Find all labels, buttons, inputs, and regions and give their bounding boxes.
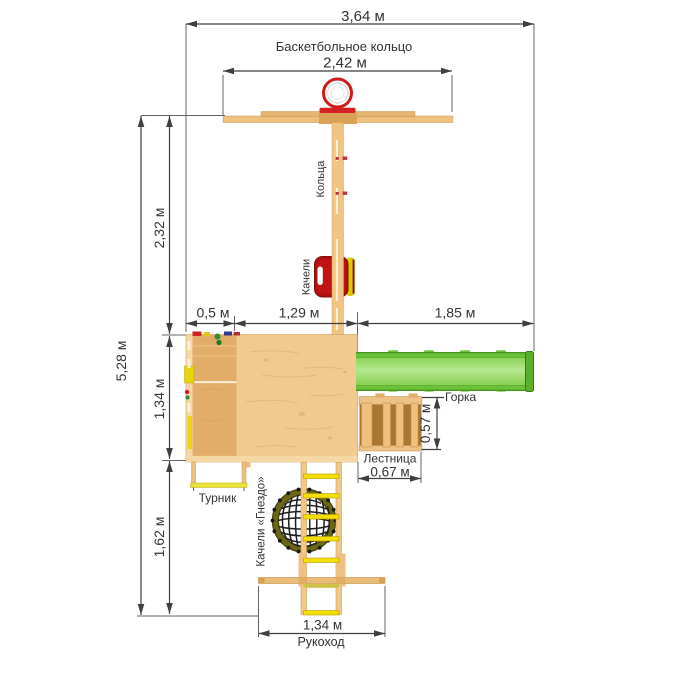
svg-text:0,5 м: 0,5 м: [197, 305, 230, 321]
svg-text:Турник: Турник: [199, 491, 238, 505]
svg-text:0,57 м: 0,57 м: [418, 404, 433, 443]
svg-text:Качели: Качели: [301, 259, 313, 295]
svg-text:3,64 м: 3,64 м: [341, 8, 385, 25]
svg-text:5,28 м: 5,28 м: [113, 341, 129, 382]
svg-text:1,34 м: 1,34 м: [303, 618, 342, 633]
svg-text:Качели «Гнездо»: Качели «Гнездо»: [256, 476, 268, 566]
svg-text:Горка: Горка: [445, 390, 477, 404]
svg-text:0,67 м: 0,67 м: [370, 465, 409, 480]
svg-text:1,34 м: 1,34 м: [151, 379, 167, 420]
svg-text:Баскетбольное кольцо: Баскетбольное кольцо: [276, 39, 413, 54]
svg-text:2,42 м: 2,42 м: [323, 55, 367, 72]
svg-text:Рукоход: Рукоход: [297, 635, 345, 649]
svg-text:1,62 м: 1,62 м: [151, 517, 167, 558]
svg-text:1,85 м: 1,85 м: [435, 305, 476, 321]
svg-text:Кольца: Кольца: [315, 160, 327, 198]
svg-text:Лестница: Лестница: [364, 452, 417, 466]
svg-text:1,29 м: 1,29 м: [279, 305, 320, 321]
svg-text:2,32 м: 2,32 м: [151, 208, 167, 249]
